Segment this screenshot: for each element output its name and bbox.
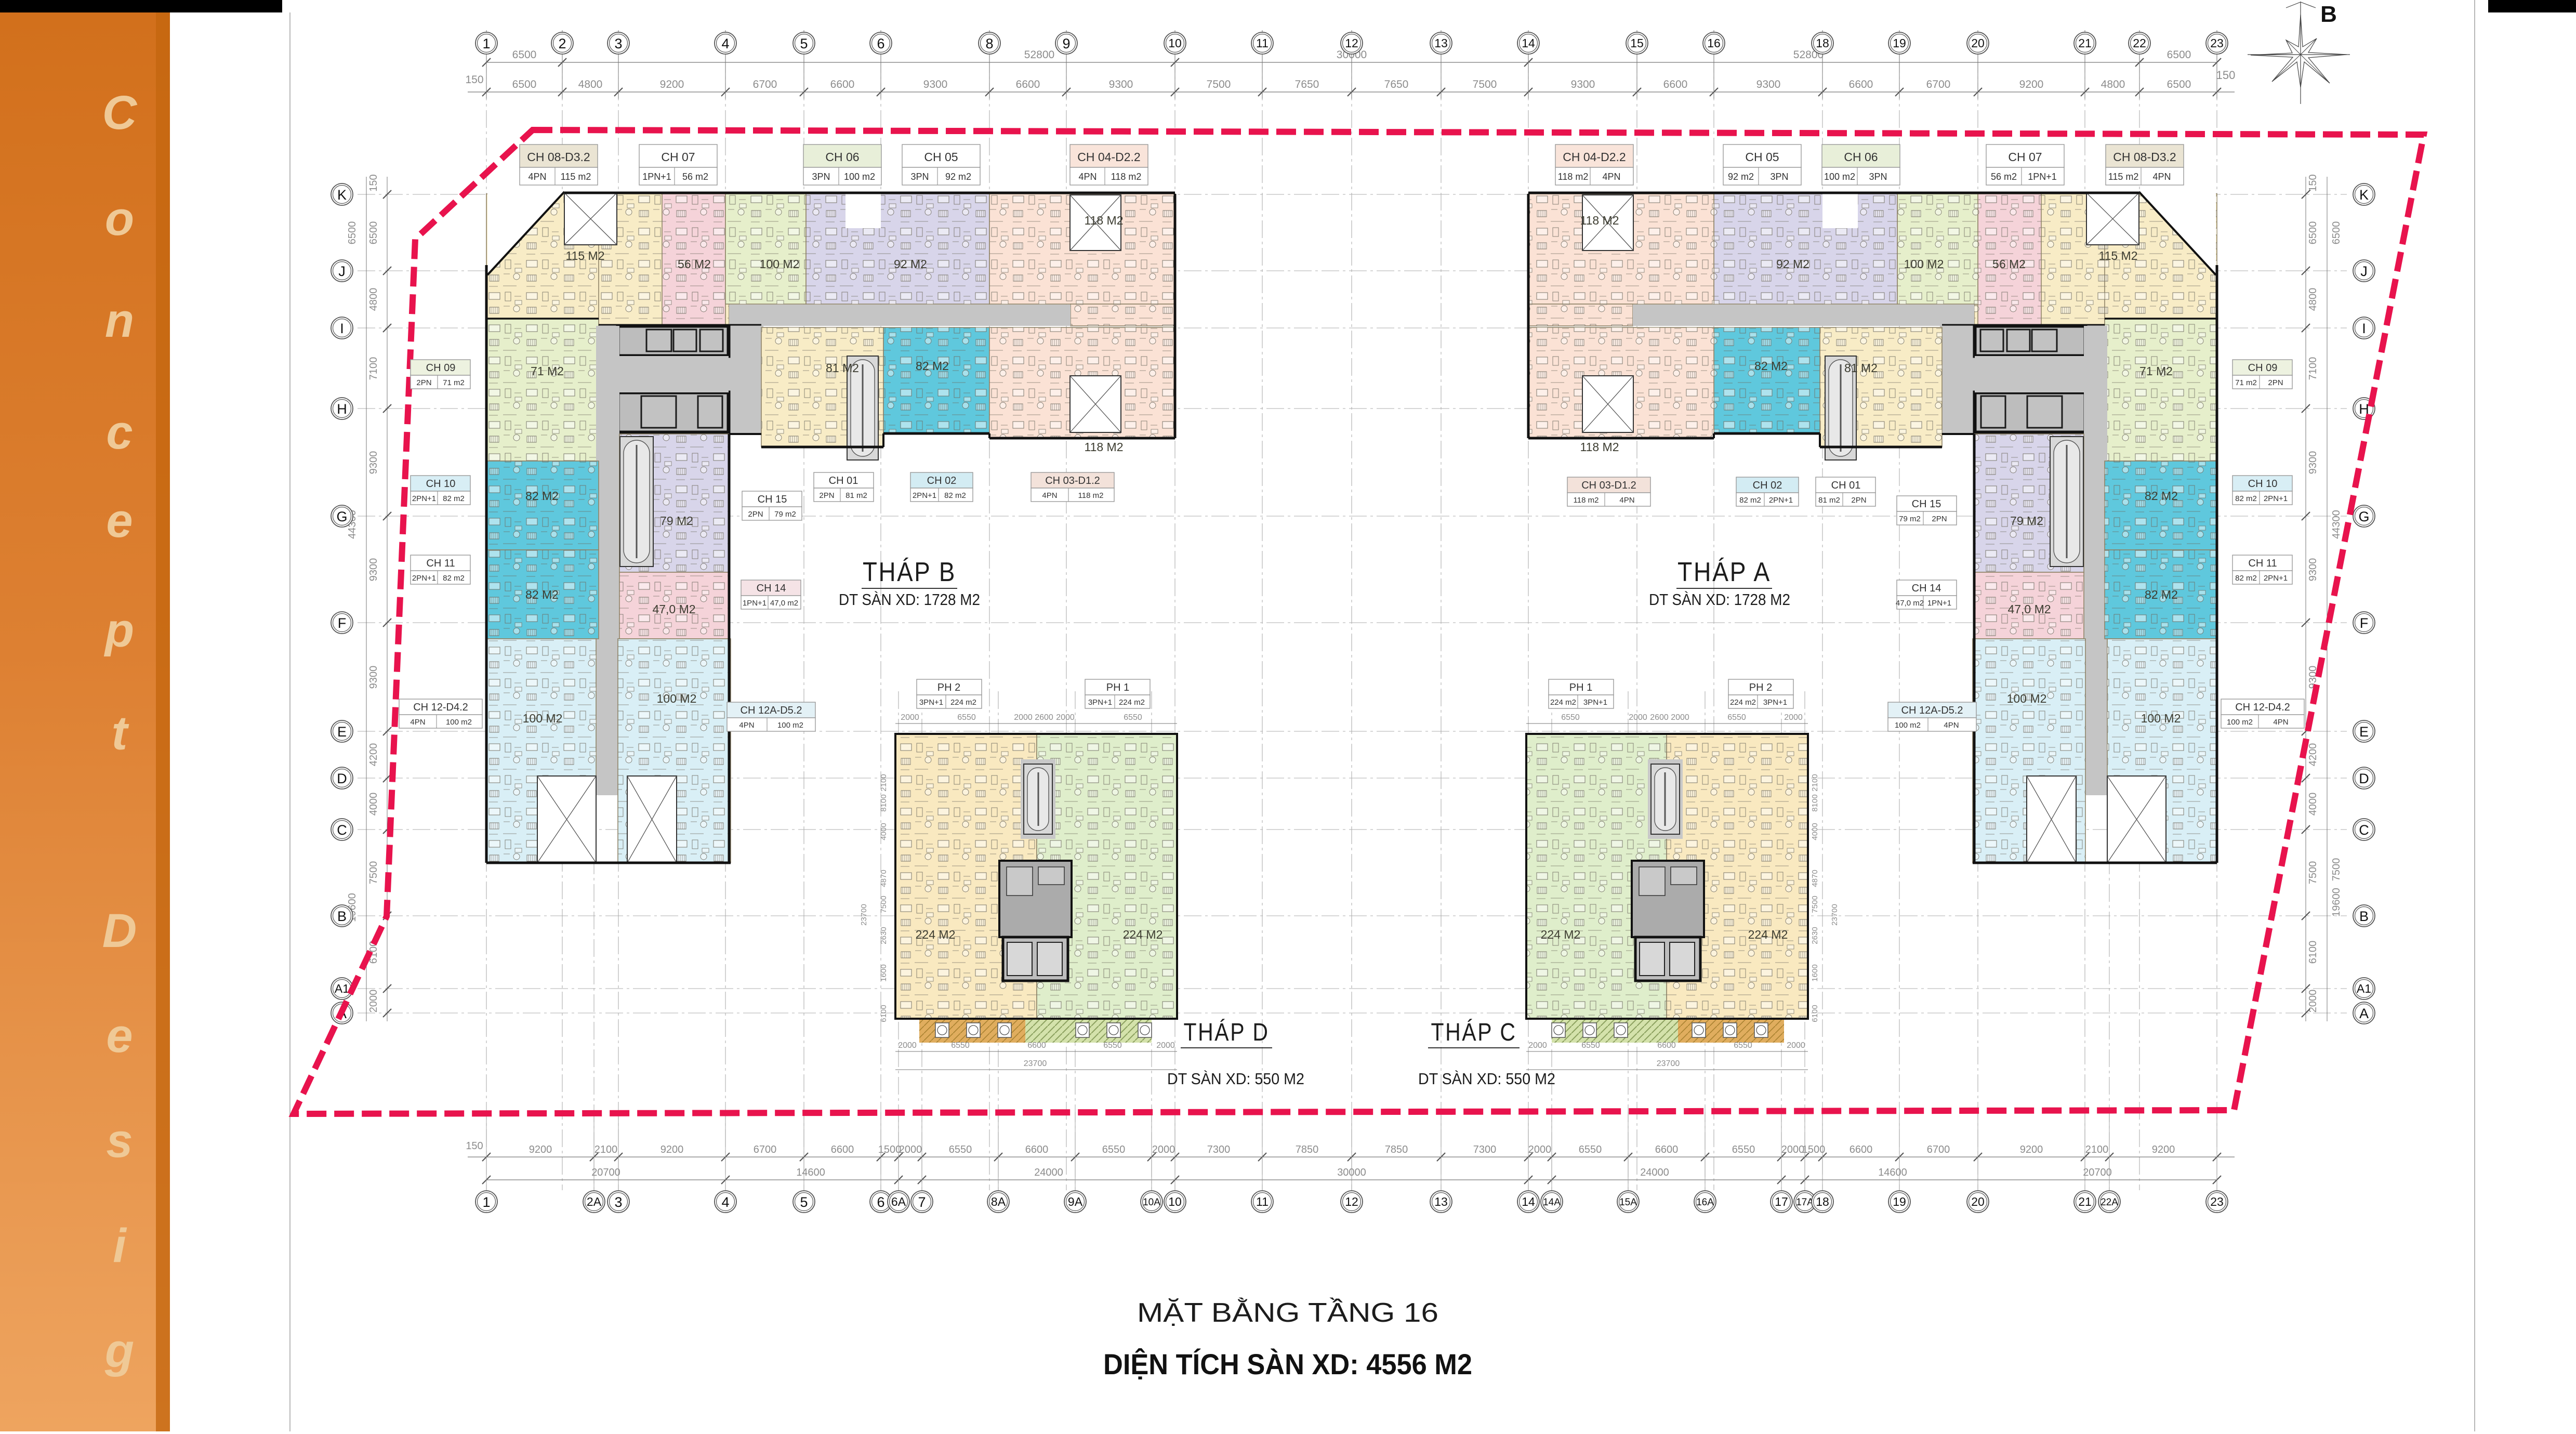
svg-text:4800: 4800 bbox=[2307, 288, 2319, 311]
svg-text:2000: 2000 bbox=[1528, 1041, 1547, 1050]
svg-text:7100: 7100 bbox=[2307, 357, 2319, 380]
svg-text:14A: 14A bbox=[1543, 1197, 1561, 1208]
svg-text:118 m2: 118 m2 bbox=[1574, 496, 1599, 505]
svg-text:14600: 14600 bbox=[1878, 1167, 1907, 1178]
svg-text:47,0 M2: 47,0 M2 bbox=[2007, 602, 2051, 616]
svg-text:6550: 6550 bbox=[957, 713, 976, 722]
svg-text:118 M2: 118 M2 bbox=[1084, 214, 1123, 227]
svg-text:11: 11 bbox=[1256, 36, 1269, 50]
svg-text:6600: 6600 bbox=[1657, 1041, 1676, 1050]
svg-text:CH 15: CH 15 bbox=[758, 494, 787, 505]
svg-text:3: 3 bbox=[614, 1194, 622, 1210]
svg-text:23: 23 bbox=[2210, 1195, 2224, 1208]
svg-text:47,0 M2: 47,0 M2 bbox=[652, 602, 695, 616]
svg-text:6500: 6500 bbox=[512, 78, 537, 90]
svg-text:3PN+1: 3PN+1 bbox=[1763, 698, 1787, 707]
svg-text:2000: 2000 bbox=[1629, 713, 1647, 722]
svg-text:3PN+1: 3PN+1 bbox=[1583, 698, 1607, 707]
svg-text:CH 11: CH 11 bbox=[426, 558, 455, 569]
svg-text:6600: 6600 bbox=[1655, 1144, 1679, 1155]
svg-text:PH 1: PH 1 bbox=[1106, 682, 1129, 693]
svg-text:CH 08-D3.2: CH 08-D3.2 bbox=[527, 150, 590, 164]
svg-text:6550: 6550 bbox=[1734, 1041, 1752, 1050]
svg-text:2630: 2630 bbox=[879, 927, 888, 944]
svg-text:4: 4 bbox=[721, 1194, 729, 1210]
svg-text:CH 09: CH 09 bbox=[2248, 362, 2278, 374]
svg-text:1PN+1: 1PN+1 bbox=[2028, 172, 2057, 182]
svg-text:9200: 9200 bbox=[2152, 1144, 2175, 1155]
svg-text:7650: 7650 bbox=[1295, 78, 1319, 90]
svg-text:4000: 4000 bbox=[1811, 823, 1819, 840]
svg-text:118 m2: 118 m2 bbox=[1078, 491, 1104, 500]
svg-text:3PN: 3PN bbox=[1869, 172, 1887, 182]
svg-text:6500: 6500 bbox=[347, 221, 358, 245]
svg-text:11: 11 bbox=[1256, 1195, 1269, 1208]
svg-text:7500: 7500 bbox=[2331, 858, 2342, 882]
svg-text:9A: 9A bbox=[1068, 1195, 1083, 1208]
svg-text:2100: 2100 bbox=[1811, 774, 1819, 791]
svg-text:CH 01: CH 01 bbox=[829, 475, 858, 486]
svg-text:7100: 7100 bbox=[368, 357, 379, 380]
svg-text:E: E bbox=[2359, 724, 2369, 740]
svg-text:CH 05: CH 05 bbox=[924, 150, 958, 164]
svg-text:4PN: 4PN bbox=[739, 721, 754, 730]
svg-text:71 m2: 71 m2 bbox=[443, 378, 465, 387]
svg-text:6600: 6600 bbox=[1663, 78, 1688, 90]
svg-text:CH 10: CH 10 bbox=[2248, 478, 2278, 490]
svg-text:I: I bbox=[340, 321, 344, 336]
svg-text:4800: 4800 bbox=[2101, 78, 2125, 90]
svg-text:100 M2: 100 M2 bbox=[2007, 692, 2047, 705]
svg-text:16A: 16A bbox=[1696, 1197, 1714, 1208]
svg-text:DT SÀN XD: 1728 M2: DT SÀN XD: 1728 M2 bbox=[1649, 590, 1790, 609]
svg-text:56 m2: 56 m2 bbox=[1991, 172, 2017, 182]
svg-text:C: C bbox=[102, 86, 138, 139]
svg-text:79 M2: 79 M2 bbox=[2010, 514, 2043, 528]
svg-text:1PN+1: 1PN+1 bbox=[1927, 599, 1951, 608]
svg-text:C: C bbox=[337, 822, 347, 838]
svg-text:CH 01: CH 01 bbox=[1831, 480, 1861, 491]
svg-text:18: 18 bbox=[1816, 1195, 1829, 1208]
svg-text:18: 18 bbox=[1816, 36, 1829, 50]
svg-text:150: 150 bbox=[2307, 174, 2319, 191]
svg-text:J: J bbox=[2360, 264, 2368, 279]
svg-text:224 m2: 224 m2 bbox=[1550, 698, 1576, 707]
svg-text:4PN: 4PN bbox=[410, 718, 425, 727]
svg-text:2PN+1: 2PN+1 bbox=[412, 494, 436, 503]
svg-text:8: 8 bbox=[985, 36, 993, 51]
svg-text:22A: 22A bbox=[2101, 1197, 2118, 1208]
svg-text:2PN: 2PN bbox=[2268, 378, 2283, 387]
svg-text:7500: 7500 bbox=[1207, 78, 1231, 90]
svg-text:6500: 6500 bbox=[512, 49, 537, 61]
svg-text:2PN+1: 2PN+1 bbox=[1769, 496, 1793, 505]
svg-text:118 M2: 118 M2 bbox=[1084, 440, 1123, 454]
svg-text:D: D bbox=[337, 771, 347, 786]
svg-text:150: 150 bbox=[368, 174, 379, 191]
svg-text:4PN: 4PN bbox=[528, 172, 546, 182]
svg-text:21: 21 bbox=[2078, 36, 2092, 50]
svg-text:9200: 9200 bbox=[660, 1144, 684, 1155]
svg-text:6100: 6100 bbox=[879, 1005, 888, 1022]
svg-text:19: 19 bbox=[1893, 1195, 1906, 1208]
svg-text:13: 13 bbox=[1434, 1195, 1448, 1208]
svg-text:92 M2: 92 M2 bbox=[1776, 257, 1809, 271]
svg-text:100 m2: 100 m2 bbox=[844, 172, 875, 182]
svg-text:3PN: 3PN bbox=[910, 172, 929, 182]
svg-text:6550: 6550 bbox=[1102, 1144, 1126, 1155]
svg-text:24000: 24000 bbox=[1034, 1167, 1063, 1178]
svg-text:82 m2: 82 m2 bbox=[944, 491, 966, 500]
svg-text:9200: 9200 bbox=[529, 1144, 552, 1155]
svg-text:7500: 7500 bbox=[1473, 78, 1497, 90]
svg-text:1500: 1500 bbox=[1802, 1144, 1826, 1155]
svg-text:CH 03-D1.2: CH 03-D1.2 bbox=[1581, 480, 1636, 491]
svg-text:2A: 2A bbox=[587, 1195, 602, 1208]
svg-text:CH 12-D4.2: CH 12-D4.2 bbox=[413, 702, 468, 713]
svg-text:t: t bbox=[112, 707, 129, 760]
svg-text:CH 02: CH 02 bbox=[927, 475, 957, 486]
svg-text:2PN: 2PN bbox=[748, 510, 763, 519]
svg-text:MẶT BẰNG TẦNG 16: MẶT BẰNG TẦNG 16 bbox=[1137, 1297, 1438, 1328]
svg-text:6600: 6600 bbox=[1025, 1144, 1049, 1155]
svg-text:9300: 9300 bbox=[368, 666, 379, 689]
svg-text:o: o bbox=[105, 192, 134, 245]
svg-text:24000: 24000 bbox=[1640, 1167, 1669, 1178]
svg-text:K: K bbox=[337, 187, 347, 203]
svg-text:9300: 9300 bbox=[368, 451, 379, 475]
svg-text:4200: 4200 bbox=[368, 743, 379, 767]
svg-text:CH 06: CH 06 bbox=[825, 150, 859, 164]
svg-text:14: 14 bbox=[1522, 1195, 1535, 1208]
svg-text:5: 5 bbox=[800, 36, 808, 51]
svg-text:82 m2: 82 m2 bbox=[443, 574, 465, 583]
svg-text:9200: 9200 bbox=[660, 78, 684, 90]
svg-text:71 M2: 71 M2 bbox=[531, 364, 564, 378]
svg-text:CH 03-D1.2: CH 03-D1.2 bbox=[1045, 475, 1100, 486]
svg-text:23700: 23700 bbox=[860, 904, 868, 926]
svg-text:e: e bbox=[106, 494, 133, 547]
svg-text:3PN: 3PN bbox=[812, 172, 830, 182]
svg-text:2000: 2000 bbox=[1784, 713, 1803, 722]
svg-text:2PN+1: 2PN+1 bbox=[412, 574, 436, 583]
svg-text:56 M2: 56 M2 bbox=[678, 257, 711, 271]
svg-text:2PN+1: 2PN+1 bbox=[2264, 574, 2288, 583]
svg-text:15: 15 bbox=[1630, 36, 1644, 50]
svg-text:82 M2: 82 M2 bbox=[916, 359, 949, 373]
svg-text:s: s bbox=[106, 1114, 133, 1167]
svg-text:82 m2: 82 m2 bbox=[2235, 494, 2257, 503]
svg-text:4PN: 4PN bbox=[2273, 718, 2288, 727]
svg-text:19: 19 bbox=[1893, 36, 1906, 50]
svg-text:118 M2: 118 M2 bbox=[1580, 440, 1619, 454]
svg-text:100 m2: 100 m2 bbox=[446, 718, 472, 727]
svg-text:7850: 7850 bbox=[1385, 1144, 1408, 1155]
svg-text:4PN: 4PN bbox=[1602, 172, 1620, 182]
svg-text:D: D bbox=[2359, 771, 2369, 786]
svg-text:2000: 2000 bbox=[368, 990, 379, 1013]
svg-text:100 m2: 100 m2 bbox=[2227, 718, 2253, 727]
svg-text:14600: 14600 bbox=[796, 1167, 825, 1178]
svg-text:6550: 6550 bbox=[1732, 1144, 1755, 1155]
svg-text:224 M2: 224 M2 bbox=[1123, 928, 1163, 941]
svg-text:7650: 7650 bbox=[1384, 78, 1409, 90]
svg-text:CH 12-D4.2: CH 12-D4.2 bbox=[2235, 702, 2290, 713]
svg-text:1500: 1500 bbox=[878, 1144, 902, 1155]
svg-text:100 M2: 100 M2 bbox=[1904, 257, 1944, 271]
svg-text:6550: 6550 bbox=[1579, 1144, 1602, 1155]
svg-text:A1: A1 bbox=[2357, 982, 2371, 995]
svg-text:224 M2: 224 M2 bbox=[1541, 928, 1581, 941]
svg-text:9200: 9200 bbox=[2020, 1144, 2043, 1155]
svg-text:1600: 1600 bbox=[879, 964, 888, 981]
svg-text:6700: 6700 bbox=[753, 78, 777, 90]
svg-text:7300: 7300 bbox=[1207, 1144, 1231, 1155]
svg-text:23700: 23700 bbox=[1830, 904, 1839, 926]
svg-text:1: 1 bbox=[482, 36, 490, 51]
svg-text:9300: 9300 bbox=[1571, 78, 1595, 90]
svg-text:I: I bbox=[2362, 321, 2366, 336]
svg-text:2600: 2600 bbox=[1650, 713, 1669, 722]
svg-text:CH 07: CH 07 bbox=[2008, 150, 2042, 164]
svg-text:47,0 m2: 47,0 m2 bbox=[770, 599, 798, 608]
svg-text:82 m2: 82 m2 bbox=[1739, 496, 1761, 505]
svg-text:CH 02: CH 02 bbox=[1753, 480, 1782, 491]
svg-text:CH 04-D2.2: CH 04-D2.2 bbox=[1077, 150, 1140, 164]
svg-text:CH 12A-D5.2: CH 12A-D5.2 bbox=[741, 705, 802, 716]
svg-text:100 M2: 100 M2 bbox=[523, 712, 563, 725]
svg-text:9300: 9300 bbox=[923, 78, 948, 90]
svg-text:2000: 2000 bbox=[1056, 713, 1075, 722]
svg-text:2000: 2000 bbox=[901, 713, 919, 722]
svg-text:8100: 8100 bbox=[879, 794, 888, 811]
svg-text:81 M2: 81 M2 bbox=[826, 361, 859, 375]
svg-text:92 m2: 92 m2 bbox=[945, 172, 971, 182]
svg-text:6: 6 bbox=[877, 1194, 884, 1210]
svg-text:7850: 7850 bbox=[1296, 1144, 1319, 1155]
svg-text:81 m2: 81 m2 bbox=[846, 491, 867, 500]
svg-text:c: c bbox=[106, 406, 133, 459]
svg-text:100 M2: 100 M2 bbox=[2141, 712, 2181, 725]
svg-text:4000: 4000 bbox=[2307, 793, 2319, 816]
svg-text:6500: 6500 bbox=[2167, 78, 2191, 90]
svg-text:82 m2: 82 m2 bbox=[2235, 574, 2257, 583]
svg-text:7500: 7500 bbox=[1811, 896, 1819, 913]
svg-text:A1: A1 bbox=[335, 982, 349, 995]
svg-text:CH 07: CH 07 bbox=[661, 150, 695, 164]
svg-text:118 m2: 118 m2 bbox=[1111, 172, 1142, 182]
svg-text:82 M2: 82 M2 bbox=[1754, 359, 1788, 373]
svg-text:2600: 2600 bbox=[1035, 713, 1053, 722]
svg-text:10: 10 bbox=[1168, 1195, 1182, 1208]
svg-text:9300: 9300 bbox=[2307, 558, 2319, 582]
svg-text:4870: 4870 bbox=[1811, 870, 1819, 887]
svg-text:79 m2: 79 m2 bbox=[1899, 515, 1921, 523]
svg-text:B: B bbox=[337, 909, 347, 924]
svg-text:19600: 19600 bbox=[2331, 888, 2342, 917]
svg-text:4PN: 4PN bbox=[2152, 172, 2171, 182]
svg-text:PH 1: PH 1 bbox=[1569, 682, 1592, 693]
svg-text:9300: 9300 bbox=[1756, 78, 1781, 90]
svg-text:6550: 6550 bbox=[949, 1144, 972, 1155]
svg-text:n: n bbox=[105, 294, 134, 347]
svg-text:4PN: 4PN bbox=[1042, 491, 1057, 500]
svg-text:THÁP D: THÁP D bbox=[1184, 1019, 1270, 1046]
svg-text:115 M2: 115 M2 bbox=[565, 249, 604, 262]
svg-text:17: 17 bbox=[1775, 1195, 1788, 1208]
svg-text:100 m2: 100 m2 bbox=[777, 721, 803, 730]
svg-text:4870: 4870 bbox=[879, 870, 888, 887]
svg-text:1600: 1600 bbox=[1811, 964, 1819, 981]
svg-text:6550: 6550 bbox=[1727, 713, 1746, 722]
svg-text:118 M2: 118 M2 bbox=[1580, 214, 1619, 227]
svg-text:6700: 6700 bbox=[1927, 1144, 1950, 1155]
svg-text:115 M2: 115 M2 bbox=[2098, 249, 2137, 262]
svg-text:H: H bbox=[337, 401, 347, 417]
svg-text:4800: 4800 bbox=[368, 288, 379, 311]
svg-text:2000: 2000 bbox=[1156, 1041, 1175, 1050]
svg-text:C: C bbox=[2359, 822, 2369, 838]
svg-text:7: 7 bbox=[918, 1194, 926, 1210]
svg-text:4PN: 4PN bbox=[1078, 172, 1097, 182]
svg-text:CH 09: CH 09 bbox=[426, 362, 456, 374]
svg-text:3: 3 bbox=[614, 36, 622, 51]
svg-text:CH 14: CH 14 bbox=[757, 583, 786, 594]
svg-text:4000: 4000 bbox=[368, 793, 379, 816]
svg-text:THÁP C: THÁP C bbox=[1431, 1019, 1517, 1046]
svg-text:e: e bbox=[106, 1009, 133, 1062]
svg-text:6500: 6500 bbox=[368, 221, 379, 245]
svg-text:6600: 6600 bbox=[830, 78, 855, 90]
svg-text:79 m2: 79 m2 bbox=[774, 510, 796, 519]
svg-text:21: 21 bbox=[2078, 1195, 2092, 1208]
svg-text:10A: 10A bbox=[1143, 1197, 1160, 1208]
svg-text:71 M2: 71 M2 bbox=[2139, 364, 2173, 378]
svg-text:D: D bbox=[102, 904, 137, 957]
svg-text:47,0 m2: 47,0 m2 bbox=[1896, 599, 1924, 608]
svg-text:224 m2: 224 m2 bbox=[1119, 698, 1145, 707]
svg-text:CH 04-D2.2: CH 04-D2.2 bbox=[1563, 150, 1626, 164]
svg-text:82 M2: 82 M2 bbox=[525, 588, 559, 601]
svg-text:3PN+1: 3PN+1 bbox=[1088, 698, 1112, 707]
svg-text:23700: 23700 bbox=[1024, 1059, 1047, 1068]
svg-text:9: 9 bbox=[1062, 36, 1070, 51]
svg-text:82 M2: 82 M2 bbox=[525, 489, 559, 503]
svg-text:2000: 2000 bbox=[1671, 713, 1689, 722]
svg-text:100 M2: 100 M2 bbox=[657, 692, 697, 705]
svg-text:6550: 6550 bbox=[1124, 713, 1142, 722]
svg-text:7500: 7500 bbox=[2307, 861, 2319, 885]
svg-text:224 M2: 224 M2 bbox=[1748, 928, 1788, 941]
svg-text:2: 2 bbox=[558, 36, 566, 51]
svg-text:56 m2: 56 m2 bbox=[682, 172, 708, 182]
svg-text:2000: 2000 bbox=[1014, 713, 1033, 722]
svg-text:10: 10 bbox=[1168, 36, 1182, 50]
svg-text:B: B bbox=[2359, 909, 2369, 924]
svg-text:DT SÀN XD: 550 M2: DT SÀN XD: 550 M2 bbox=[1167, 1070, 1304, 1088]
svg-text:3PN: 3PN bbox=[1770, 172, 1788, 182]
svg-text:6600: 6600 bbox=[1850, 1144, 1873, 1155]
svg-text:100 M2: 100 M2 bbox=[760, 257, 800, 271]
svg-text:150: 150 bbox=[466, 1140, 483, 1152]
svg-text:CH 15: CH 15 bbox=[1912, 498, 1941, 510]
svg-text:224 m2: 224 m2 bbox=[1730, 698, 1756, 707]
svg-text:20: 20 bbox=[1971, 1195, 1985, 1208]
svg-text:6550: 6550 bbox=[1581, 1041, 1600, 1050]
svg-text:6550: 6550 bbox=[1103, 1041, 1122, 1050]
svg-text:6: 6 bbox=[877, 36, 884, 51]
svg-text:CH 11: CH 11 bbox=[2248, 558, 2277, 569]
svg-text:4: 4 bbox=[721, 36, 729, 51]
svg-text:5: 5 bbox=[800, 1194, 808, 1210]
svg-text:100 m2: 100 m2 bbox=[1895, 721, 1921, 730]
svg-text:CH 05: CH 05 bbox=[1745, 150, 1779, 164]
svg-text:G: G bbox=[336, 509, 347, 524]
svg-text:PH 2: PH 2 bbox=[937, 682, 960, 693]
svg-text:23: 23 bbox=[2210, 36, 2224, 50]
svg-text:15A: 15A bbox=[1619, 1197, 1637, 1208]
svg-text:1PN+1: 1PN+1 bbox=[642, 172, 671, 182]
svg-text:82 m2: 82 m2 bbox=[443, 494, 465, 503]
svg-text:4800: 4800 bbox=[578, 78, 603, 90]
svg-text:F: F bbox=[338, 615, 347, 631]
svg-text:6500: 6500 bbox=[2167, 49, 2191, 61]
svg-text:44300: 44300 bbox=[2331, 510, 2342, 539]
svg-text:2630: 2630 bbox=[1811, 927, 1819, 944]
svg-text:20700: 20700 bbox=[591, 1167, 620, 1178]
svg-text:THÁP B: THÁP B bbox=[863, 557, 956, 587]
svg-text:81 M2: 81 M2 bbox=[1844, 361, 1878, 375]
svg-text:56 M2: 56 M2 bbox=[1992, 257, 2026, 271]
svg-text:1PN+1: 1PN+1 bbox=[743, 599, 767, 608]
svg-text:13: 13 bbox=[1434, 36, 1448, 50]
svg-text:118 m2: 118 m2 bbox=[1558, 172, 1589, 182]
svg-text:92 m2: 92 m2 bbox=[1728, 172, 1754, 182]
svg-text:6100: 6100 bbox=[1811, 1005, 1819, 1022]
svg-text:6700: 6700 bbox=[1926, 78, 1951, 90]
svg-text:6600: 6600 bbox=[831, 1144, 854, 1155]
svg-text:1: 1 bbox=[482, 1194, 490, 1210]
svg-text:3PN+1: 3PN+1 bbox=[919, 698, 943, 707]
svg-text:82 M2: 82 M2 bbox=[2145, 588, 2178, 601]
svg-text:PH 2: PH 2 bbox=[1749, 682, 1772, 693]
svg-text:2PN+1: 2PN+1 bbox=[2264, 494, 2288, 503]
svg-text:224 M2: 224 M2 bbox=[916, 928, 956, 941]
svg-text:6550: 6550 bbox=[951, 1041, 970, 1050]
svg-text:2PN+1: 2PN+1 bbox=[913, 491, 936, 500]
svg-text:9300: 9300 bbox=[2307, 451, 2319, 475]
svg-text:79 M2: 79 M2 bbox=[660, 514, 693, 528]
svg-text:DIỆN TÍCH SÀN XD: 4556 M2: DIỆN TÍCH SÀN XD: 4556 M2 bbox=[1103, 1348, 1472, 1380]
svg-text:4000: 4000 bbox=[879, 823, 888, 840]
svg-text:7500: 7500 bbox=[879, 896, 888, 913]
svg-text:DT SÀN XD: 550 M2: DT SÀN XD: 550 M2 bbox=[1418, 1070, 1555, 1088]
svg-text:17A: 17A bbox=[1796, 1197, 1814, 1208]
svg-text:92 M2: 92 M2 bbox=[894, 257, 927, 271]
svg-text:i: i bbox=[113, 1219, 127, 1272]
svg-text:2000: 2000 bbox=[898, 1041, 917, 1050]
svg-text:E: E bbox=[337, 724, 347, 740]
svg-text:224 m2: 224 m2 bbox=[950, 698, 976, 707]
svg-text:4200: 4200 bbox=[2307, 743, 2319, 767]
svg-text:7500: 7500 bbox=[368, 861, 379, 885]
svg-text:71 m2: 71 m2 bbox=[2235, 378, 2257, 387]
svg-text:g: g bbox=[104, 1324, 134, 1377]
svg-text:2PN: 2PN bbox=[416, 378, 431, 387]
svg-text:B: B bbox=[2320, 2, 2337, 27]
svg-text:115 m2: 115 m2 bbox=[561, 172, 591, 182]
svg-text:12: 12 bbox=[1345, 36, 1358, 50]
